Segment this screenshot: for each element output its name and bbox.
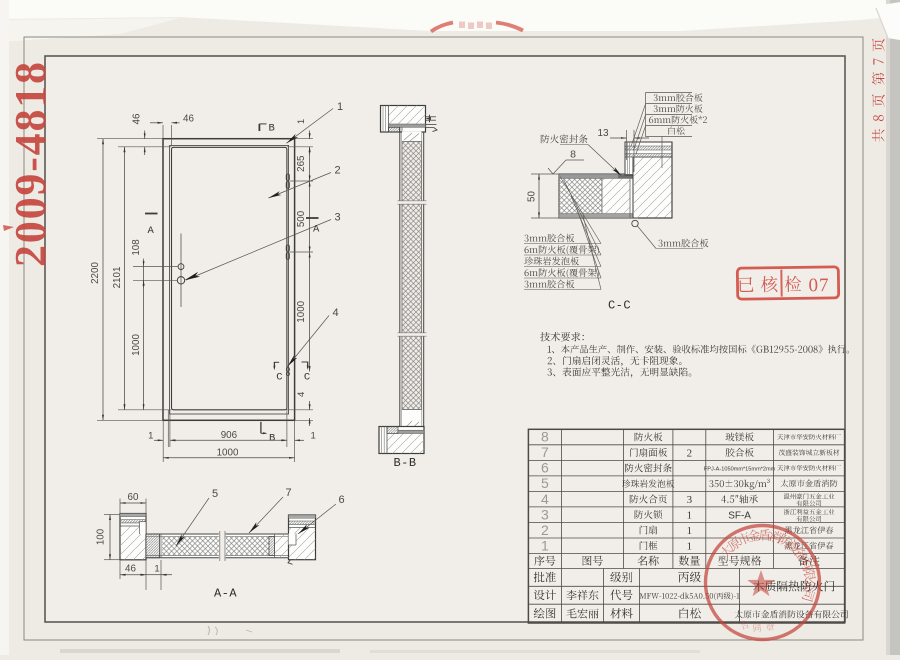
svg-text:4: 4 — [333, 307, 339, 319]
svg-text:07: 07 — [808, 275, 829, 296]
svg-text:A: A — [148, 225, 155, 237]
svg-text:C: C — [276, 371, 282, 383]
svg-text:C: C — [304, 371, 310, 383]
svg-text:2200: 2200 — [90, 262, 101, 284]
svg-text:1000: 1000 — [131, 334, 142, 356]
svg-text:265: 265 — [296, 155, 307, 172]
svg-text:3: 3 — [687, 494, 693, 506]
svg-text:4: 4 — [296, 392, 307, 397]
svg-text:2101: 2101 — [112, 267, 123, 289]
svg-text:2009-4818: 2009-4818 — [6, 60, 55, 267]
svg-text:46: 46 — [183, 114, 194, 125]
svg-text:1: 1 — [311, 430, 316, 441]
svg-text:FPJ-A-1050mm*15mm*2mm: FPJ-A-1050mm*15mm*2mm — [704, 467, 776, 473]
svg-text:3: 3 — [335, 212, 341, 224]
svg-text:60: 60 — [128, 492, 139, 503]
svg-text:A-A: A-A — [214, 587, 237, 601]
svg-text:A: A — [313, 224, 320, 236]
svg-text:1: 1 — [687, 541, 693, 553]
svg-text:50: 50 — [527, 191, 538, 202]
svg-text:4: 4 — [541, 491, 549, 507]
svg-text:C-C: C-C — [608, 299, 631, 313]
svg-text:500: 500 — [296, 210, 307, 227]
svg-text:1000: 1000 — [296, 300, 307, 322]
svg-text:2: 2 — [541, 522, 549, 538]
svg-text:108: 108 — [131, 239, 142, 256]
svg-text:B: B — [269, 123, 275, 135]
svg-text:SF-A: SF-A — [728, 510, 751, 521]
svg-text:46: 46 — [132, 113, 143, 124]
svg-text:1: 1 — [541, 537, 549, 553]
svg-text:1: 1 — [154, 564, 159, 575]
svg-text:1000: 1000 — [217, 448, 239, 459]
svg-text:5: 5 — [212, 488, 218, 500]
svg-text:7: 7 — [541, 444, 549, 460]
svg-text:13: 13 — [597, 128, 609, 139]
svg-text:46: 46 — [125, 564, 136, 575]
svg-text:1: 1 — [148, 430, 153, 441]
svg-text:100: 100 — [96, 528, 107, 545]
svg-text:B-B: B-B — [393, 456, 416, 470]
svg-text:1: 1 — [687, 525, 693, 537]
svg-text:6: 6 — [339, 494, 345, 506]
svg-text:B: B — [269, 433, 275, 445]
svg-text:6: 6 — [541, 460, 549, 476]
svg-text:1: 1 — [296, 119, 307, 124]
svg-text:8: 8 — [541, 429, 549, 445]
svg-text:1: 1 — [337, 101, 343, 113]
svg-text:7: 7 — [286, 487, 292, 499]
svg-text:5: 5 — [541, 475, 549, 491]
svg-text:2: 2 — [335, 165, 341, 177]
svg-text:1: 1 — [687, 510, 693, 522]
svg-text:3: 3 — [541, 506, 549, 522]
svg-text:906: 906 — [221, 430, 238, 441]
svg-text:8: 8 — [570, 149, 576, 161]
svg-text:2: 2 — [687, 448, 693, 460]
